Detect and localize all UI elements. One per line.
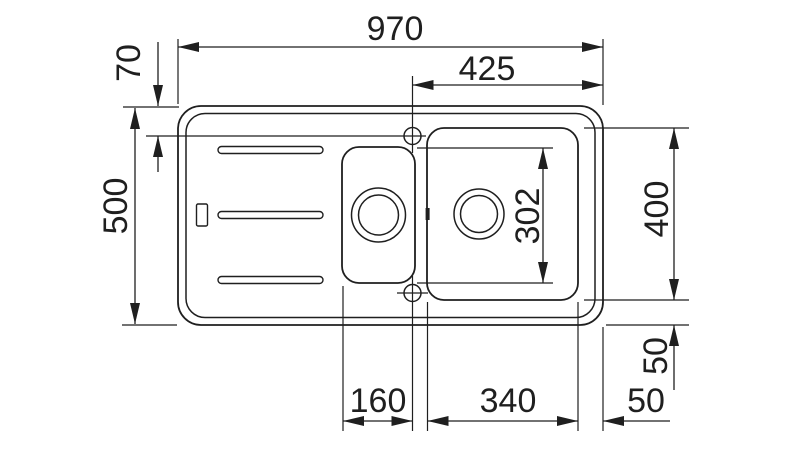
small-bowl: [342, 147, 415, 283]
main-bowl-drain-outer: [454, 189, 504, 239]
small-bowl-outline: [342, 147, 415, 283]
small-bowl-drain-outer: [352, 188, 406, 242]
sink-dimension-drawing: 970 425 70 500 302 400 50: [0, 0, 800, 454]
drainboard-slot: [218, 147, 323, 154]
dimension-bowl-bottom-edge-offset: 50: [606, 325, 689, 390]
overflow-notch: [426, 208, 430, 220]
bowl-right-edge-offset-label: 50: [627, 382, 665, 420]
overall-depth-label: 500: [97, 178, 135, 235]
small-bowl-drain-inner: [359, 195, 399, 235]
drainboard-slot: [218, 212, 323, 219]
main-bowl: [426, 128, 578, 300]
dimension-top-right-width: 425: [413, 50, 604, 88]
drainboard-slot: [218, 277, 323, 284]
overall-width-label: 970: [367, 10, 424, 48]
dimension-overall-depth: 500: [97, 108, 177, 325]
dimension-main-bowl-inner-depth: 302: [417, 148, 553, 283]
mounting-hole-top: [146, 76, 426, 153]
small-bowl-width-label: 160: [350, 382, 407, 420]
main-bowl-depth-label: 400: [638, 181, 676, 238]
dimension-small-bowl-width: 160: [343, 286, 413, 431]
dimension-overall-width: 970: [178, 10, 603, 105]
bowl-bottom-edge-offset-label: 50: [637, 337, 675, 375]
main-bowl-inner-depth-label: 302: [509, 188, 547, 245]
technical-drawing-page: 970 425 70 500 302 400 50: [0, 0, 800, 454]
dimension-main-bowl-depth: 400: [584, 128, 689, 300]
dimension-main-bowl-width: 340: [428, 302, 579, 431]
sink-plan-view: [146, 76, 603, 431]
top-edge-offset-label: 70: [110, 44, 148, 82]
main-bowl-outline: [427, 128, 578, 300]
tap-hole: [197, 204, 208, 226]
main-bowl-width-label: 340: [480, 382, 537, 420]
drainboard: [197, 147, 324, 284]
top-right-width-label: 425: [459, 50, 516, 88]
main-bowl-drain-inner: [461, 196, 498, 233]
dimension-top-edge-offset: 70: [110, 42, 179, 172]
